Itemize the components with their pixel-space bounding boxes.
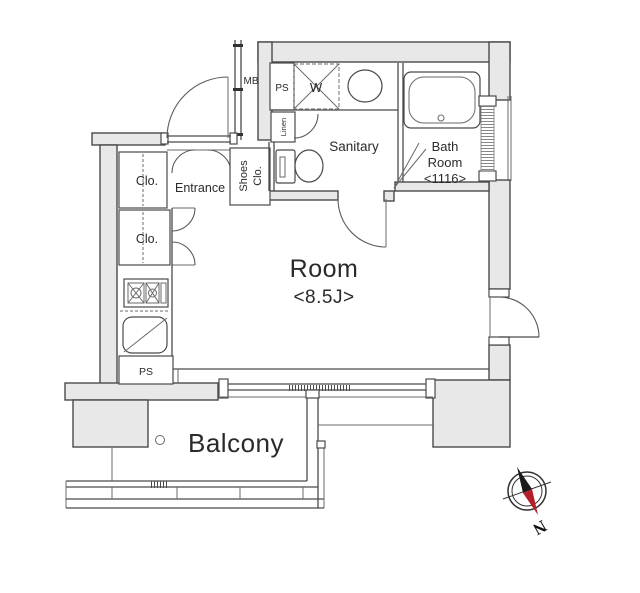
- bath-size-label: <1116>: [424, 171, 466, 186]
- bath-label-line1: Bath: [432, 139, 459, 154]
- entry-door-swing-arc: [167, 77, 228, 138]
- compass: N: [503, 467, 551, 539]
- shoes-closet-label-line1: Shoes: [238, 160, 250, 192]
- shoes-closet-label-line2: Clo.: [252, 166, 264, 186]
- washing-machine-icon: W: [294, 64, 339, 109]
- bath-label-line2: Room: [428, 155, 463, 170]
- ps-kitchen-label: PS: [139, 366, 153, 378]
- wash-basin-icon: [348, 70, 382, 102]
- shoes-closet: Shoes Clo.: [230, 148, 270, 205]
- compass-north-label: N: [529, 516, 550, 539]
- closet-lower: Clo.: [119, 208, 195, 265]
- wall-sanitary-south: [269, 191, 338, 200]
- sanitary-door-arc: [338, 199, 386, 247]
- wall-right-upper: [489, 42, 510, 100]
- bathtub-icon: [404, 72, 480, 128]
- stove-icon: [124, 279, 168, 307]
- closet-upper: Clo.: [119, 150, 231, 208]
- compass-needle-north: [523, 489, 538, 515]
- balcony-divider-tick: [317, 441, 325, 448]
- wall-tick: [233, 44, 243, 47]
- closet-door-arc: [172, 242, 195, 265]
- room-label: Room: [290, 255, 359, 283]
- closet-door-arc: [208, 150, 231, 173]
- closet-upper-label: Clo.: [136, 174, 158, 188]
- ps-utility-label: PS: [275, 83, 289, 94]
- wall-left-stub: [92, 133, 165, 145]
- bath-room: Bath Room <1116>: [394, 72, 480, 188]
- closet-door-arc: [172, 208, 195, 231]
- compass-needle-south: [517, 467, 532, 493]
- wall-right-lower: [489, 345, 510, 380]
- room-size-label: <8.5J>: [293, 287, 354, 308]
- wall-tick: [233, 88, 243, 91]
- wall-right-middle: [489, 180, 510, 289]
- balcony-drain-hatch: [151, 481, 167, 488]
- linen-door-arc: [294, 114, 318, 138]
- closet-door-arc: [172, 150, 195, 173]
- door-frame-cap: [230, 133, 237, 144]
- linen-cabinet: Linen: [271, 112, 318, 142]
- east-door: [489, 289, 539, 345]
- south-window: [218, 379, 435, 398]
- toilet-icon: [276, 150, 323, 183]
- washer-label: W: [310, 80, 323, 95]
- sink-icon: [123, 317, 167, 353]
- balcony-drain-icon: [156, 436, 165, 445]
- kitchen: PS: [119, 279, 173, 384]
- wall-left: [100, 145, 117, 384]
- wall-bottom-right-block: [433, 380, 510, 447]
- wall-top: [258, 42, 510, 62]
- balcony-divider-cap: [306, 390, 319, 398]
- entrance-label: Entrance: [175, 181, 225, 195]
- east-door-swing-arc: [499, 297, 539, 337]
- utility-row: PS W: [270, 63, 398, 110]
- mb-label: MB: [244, 76, 259, 87]
- wall-bottom-left-block: [73, 400, 148, 447]
- balcony-label: Balcony: [188, 428, 284, 458]
- entry-door: [161, 77, 237, 150]
- sanitary-label: Sanitary: [329, 139, 379, 154]
- wall-bottom-left-strip: [65, 383, 218, 400]
- bath-window: [479, 96, 511, 181]
- window-hatch: [481, 106, 494, 171]
- floor-plan: MB Clo. Clo.: [0, 0, 640, 593]
- pipe-space-kitchen: PS: [119, 356, 173, 384]
- closet-lower-label: Clo.: [136, 232, 158, 246]
- linen-label: Linen: [279, 118, 288, 136]
- floor-plan-page: MB Clo. Clo.: [0, 0, 640, 593]
- main-room: Room <8.5J>: [173, 255, 489, 383]
- meter-box-corridor: MB: [233, 40, 259, 140]
